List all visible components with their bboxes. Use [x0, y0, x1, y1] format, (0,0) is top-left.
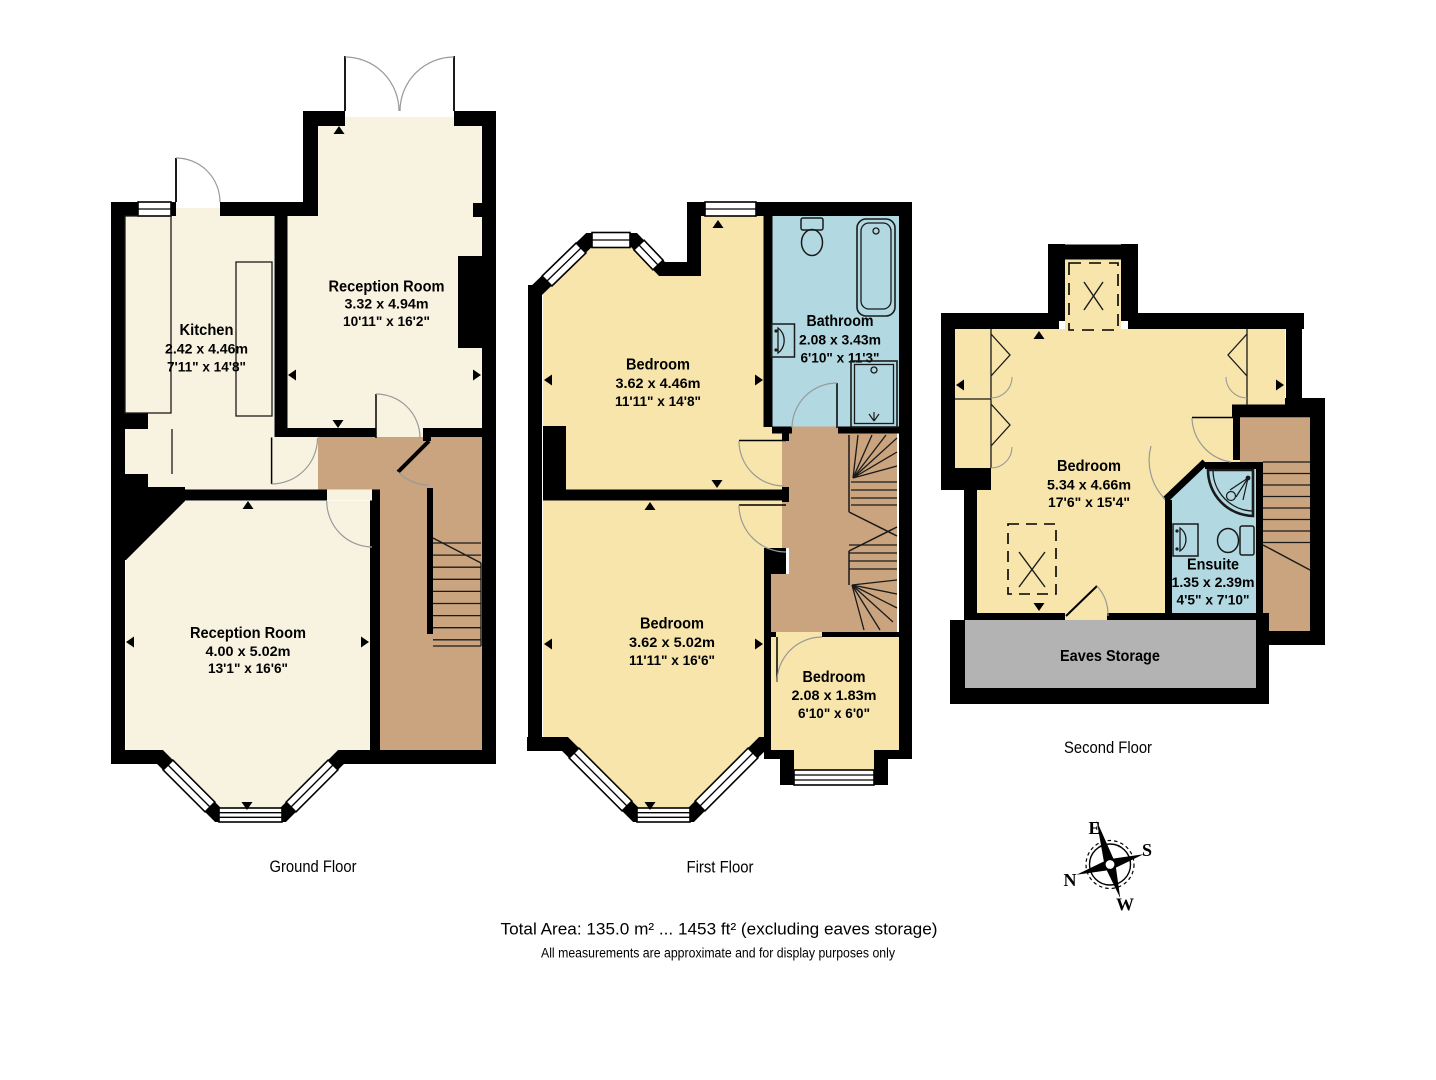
svg-text:2.42 x 4.46m: 2.42 x 4.46m [165, 341, 248, 357]
svg-text:3.62 x 4.46m: 3.62 x 4.46m [616, 375, 701, 391]
svg-text:N: N [1064, 870, 1077, 890]
svg-text:Bedroom: Bedroom [640, 616, 704, 633]
svg-text:3.32 x 4.94m: 3.32 x 4.94m [345, 296, 429, 312]
svg-text:2.08 x 3.43m: 2.08 x 3.43m [799, 332, 881, 348]
svg-text:W: W [1116, 895, 1134, 915]
svg-text:E: E [1088, 818, 1100, 838]
svg-text:17'6" x 15'4": 17'6" x 15'4" [1048, 494, 1130, 510]
svg-text:Ensuite: Ensuite [1187, 557, 1239, 574]
svg-text:Ground Floor: Ground Floor [270, 857, 357, 876]
svg-text:Second Floor: Second Floor [1064, 738, 1152, 757]
svg-text:6'10" x 6'0": 6'10" x 6'0" [798, 705, 870, 721]
svg-text:Reception Room: Reception Room [329, 279, 445, 296]
svg-text:4.00 x 5.02m: 4.00 x 5.02m [206, 643, 291, 659]
svg-text:S: S [1142, 840, 1152, 860]
svg-text:10'11" x 16'2": 10'11" x 16'2" [343, 313, 430, 329]
svg-text:1.35 x 2.39m: 1.35 x 2.39m [1172, 574, 1255, 590]
svg-text:6'10" x 11'3": 6'10" x 11'3" [801, 350, 880, 366]
svg-text:Bedroom: Bedroom [1057, 458, 1121, 475]
svg-text:Total Area: 135.0 m² ... 1453: Total Area: 135.0 m² ... 1453 ft² (exclu… [501, 920, 938, 939]
svg-text:13'1" x 16'6": 13'1" x 16'6" [208, 660, 288, 676]
svg-text:Kitchen: Kitchen [180, 322, 234, 339]
svg-text:Bedroom: Bedroom [803, 669, 866, 686]
svg-text:2.08 x 1.83m: 2.08 x 1.83m [792, 687, 877, 703]
svg-text:Bedroom: Bedroom [626, 357, 690, 374]
svg-text:5.34 x 4.66m: 5.34 x 4.66m [1047, 477, 1131, 493]
svg-text:All measurements are approxima: All measurements are approximate and for… [541, 946, 895, 961]
svg-text:7'11" x 14'8": 7'11" x 14'8" [167, 359, 246, 375]
svg-text:Reception Room: Reception Room [190, 625, 306, 642]
svg-text:First Floor: First Floor [687, 858, 754, 877]
svg-text:11'11" x 16'6": 11'11" x 16'6" [629, 652, 715, 668]
svg-text:3.62 x 5.02m: 3.62 x 5.02m [629, 634, 715, 650]
svg-text:11'11" x 14'8": 11'11" x 14'8" [615, 393, 701, 409]
svg-text:Eaves Storage: Eaves Storage [1060, 648, 1160, 665]
svg-text:4'5" x 7'10": 4'5" x 7'10" [1177, 592, 1250, 608]
